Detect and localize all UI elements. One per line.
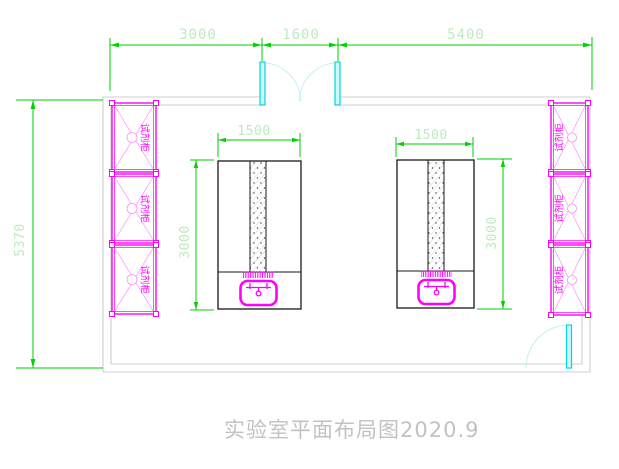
- bench-reagent-shelf: [428, 160, 444, 271]
- double-door-top: [260, 62, 340, 105]
- door-swing-arc: [526, 325, 569, 368]
- bench-reagent-shelf: [250, 161, 266, 272]
- wall-lines: [103, 97, 590, 372]
- cabinet-label: 试剂柜: [554, 194, 566, 223]
- reagent-cabinet: 试剂柜: [110, 172, 159, 246]
- dim-top-left: 3000: [179, 27, 217, 43]
- dim-top-middle: 1600: [282, 27, 320, 43]
- door-swing-arc-left: [263, 63, 301, 101]
- reagent-cabinet-column-left: 试剂柜 试剂柜 试剂柜: [110, 101, 159, 317]
- cabinet-label: 试剂柜: [139, 265, 151, 294]
- dim-top-right: 5400: [447, 27, 485, 43]
- reagent-cabinet-column-right: 试剂柜 试剂柜 试剂柜: [549, 101, 591, 318]
- cabinet-label: 试剂柜: [554, 123, 566, 152]
- door-leaf: [567, 325, 572, 368]
- dim-bench-depth: 3000: [178, 225, 193, 258]
- dim-bench-depth: 3000: [485, 216, 500, 249]
- cabinet-label: 试剂柜: [139, 123, 151, 152]
- lab-bench-right: [397, 160, 474, 308]
- door-leaf-left: [260, 62, 265, 105]
- cabinet-label: 试剂柜: [554, 265, 566, 294]
- reagent-cabinet: 试剂柜: [549, 172, 591, 246]
- reagent-cabinet: 试剂柜: [549, 243, 591, 318]
- reagent-cabinet: 试剂柜: [110, 101, 159, 175]
- door-swing-arc-right: [300, 63, 338, 101]
- cabinet-label: 试剂柜: [139, 194, 151, 223]
- reagent-cabinet: 试剂柜: [549, 101, 591, 175]
- dim-left-overall: 5370: [13, 223, 28, 256]
- dim-bench-width: 1500: [414, 128, 447, 143]
- dim-bench-width: 1500: [237, 124, 270, 139]
- left-dimension: 5370: [13, 100, 103, 368]
- single-door-right: [526, 325, 572, 368]
- room-walls: [103, 97, 590, 372]
- reagent-cabinet: 试剂柜: [110, 243, 159, 317]
- top-dimension: 3000 1600 5400: [110, 27, 592, 91]
- door-leaf-right: [335, 62, 340, 105]
- lab-bench-left: [218, 161, 301, 309]
- drawing-title: 实验室平面布局图2020.9: [224, 414, 479, 444]
- floorplan-canvas: 3000 1600 5400 5370: [0, 0, 619, 469]
